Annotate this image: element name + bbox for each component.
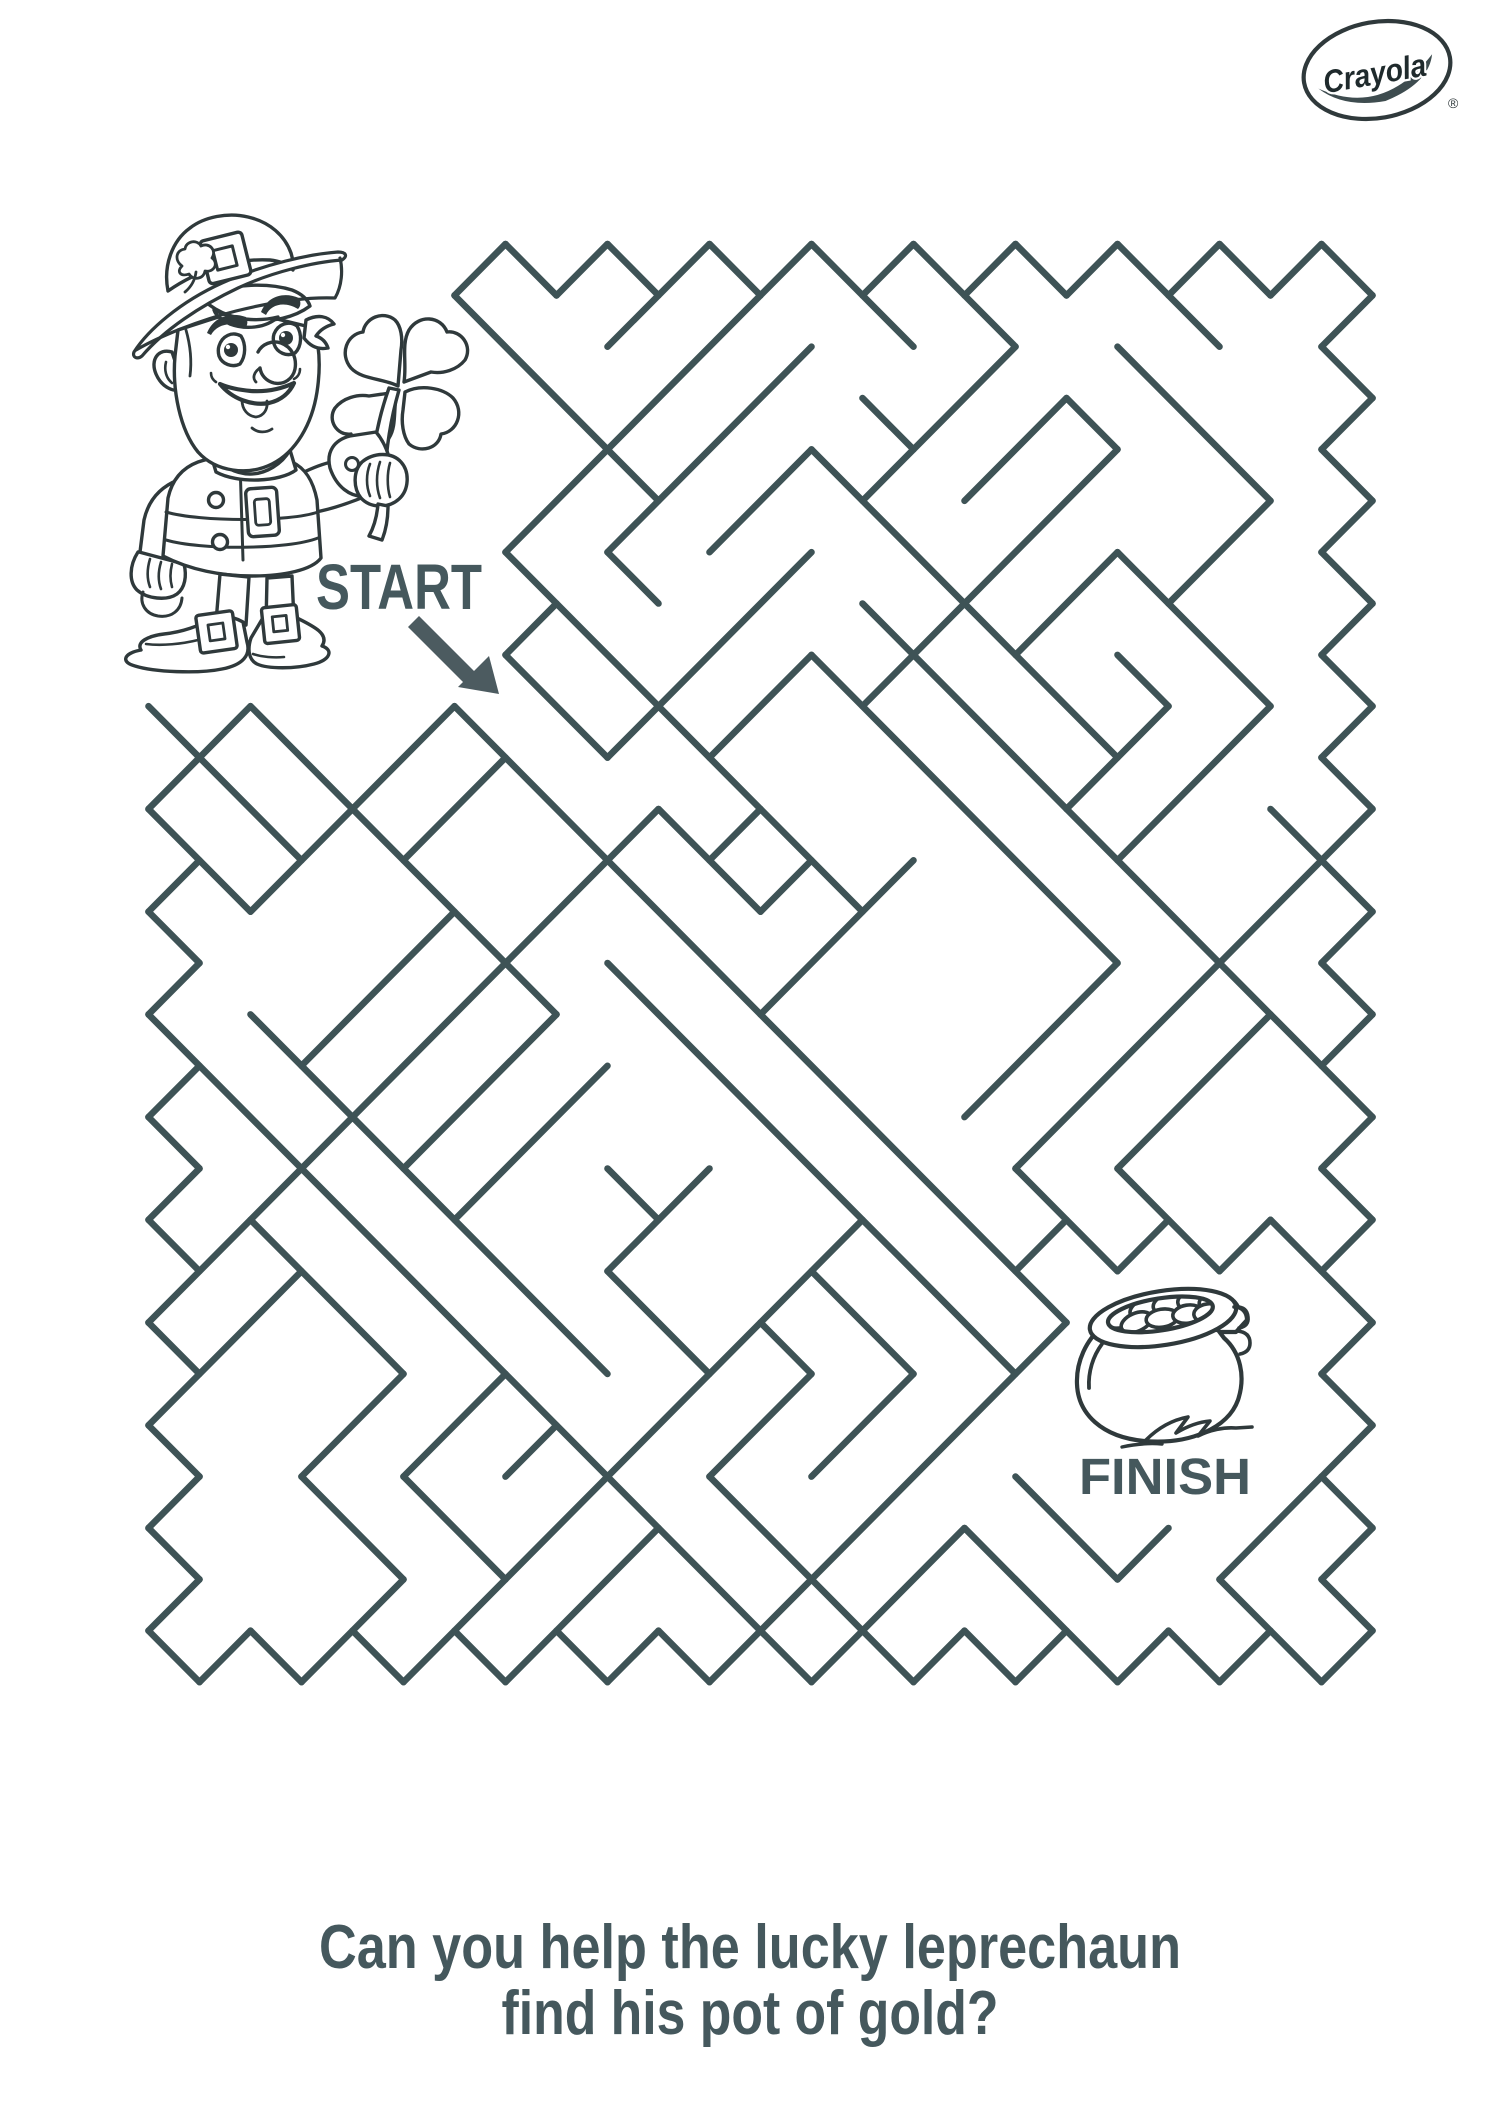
svg-text:START: START xyxy=(316,551,482,623)
svg-text:®: ® xyxy=(1448,95,1459,111)
svg-text:find his pot of gold?: find his pot of gold? xyxy=(502,1979,999,2048)
svg-text:Can you help the lucky leprech: Can you help the lucky leprechaun xyxy=(319,1913,1181,1982)
svg-text:FINISH: FINISH xyxy=(1079,1448,1251,1505)
svg-text:Crayola: Crayola xyxy=(1320,47,1429,101)
